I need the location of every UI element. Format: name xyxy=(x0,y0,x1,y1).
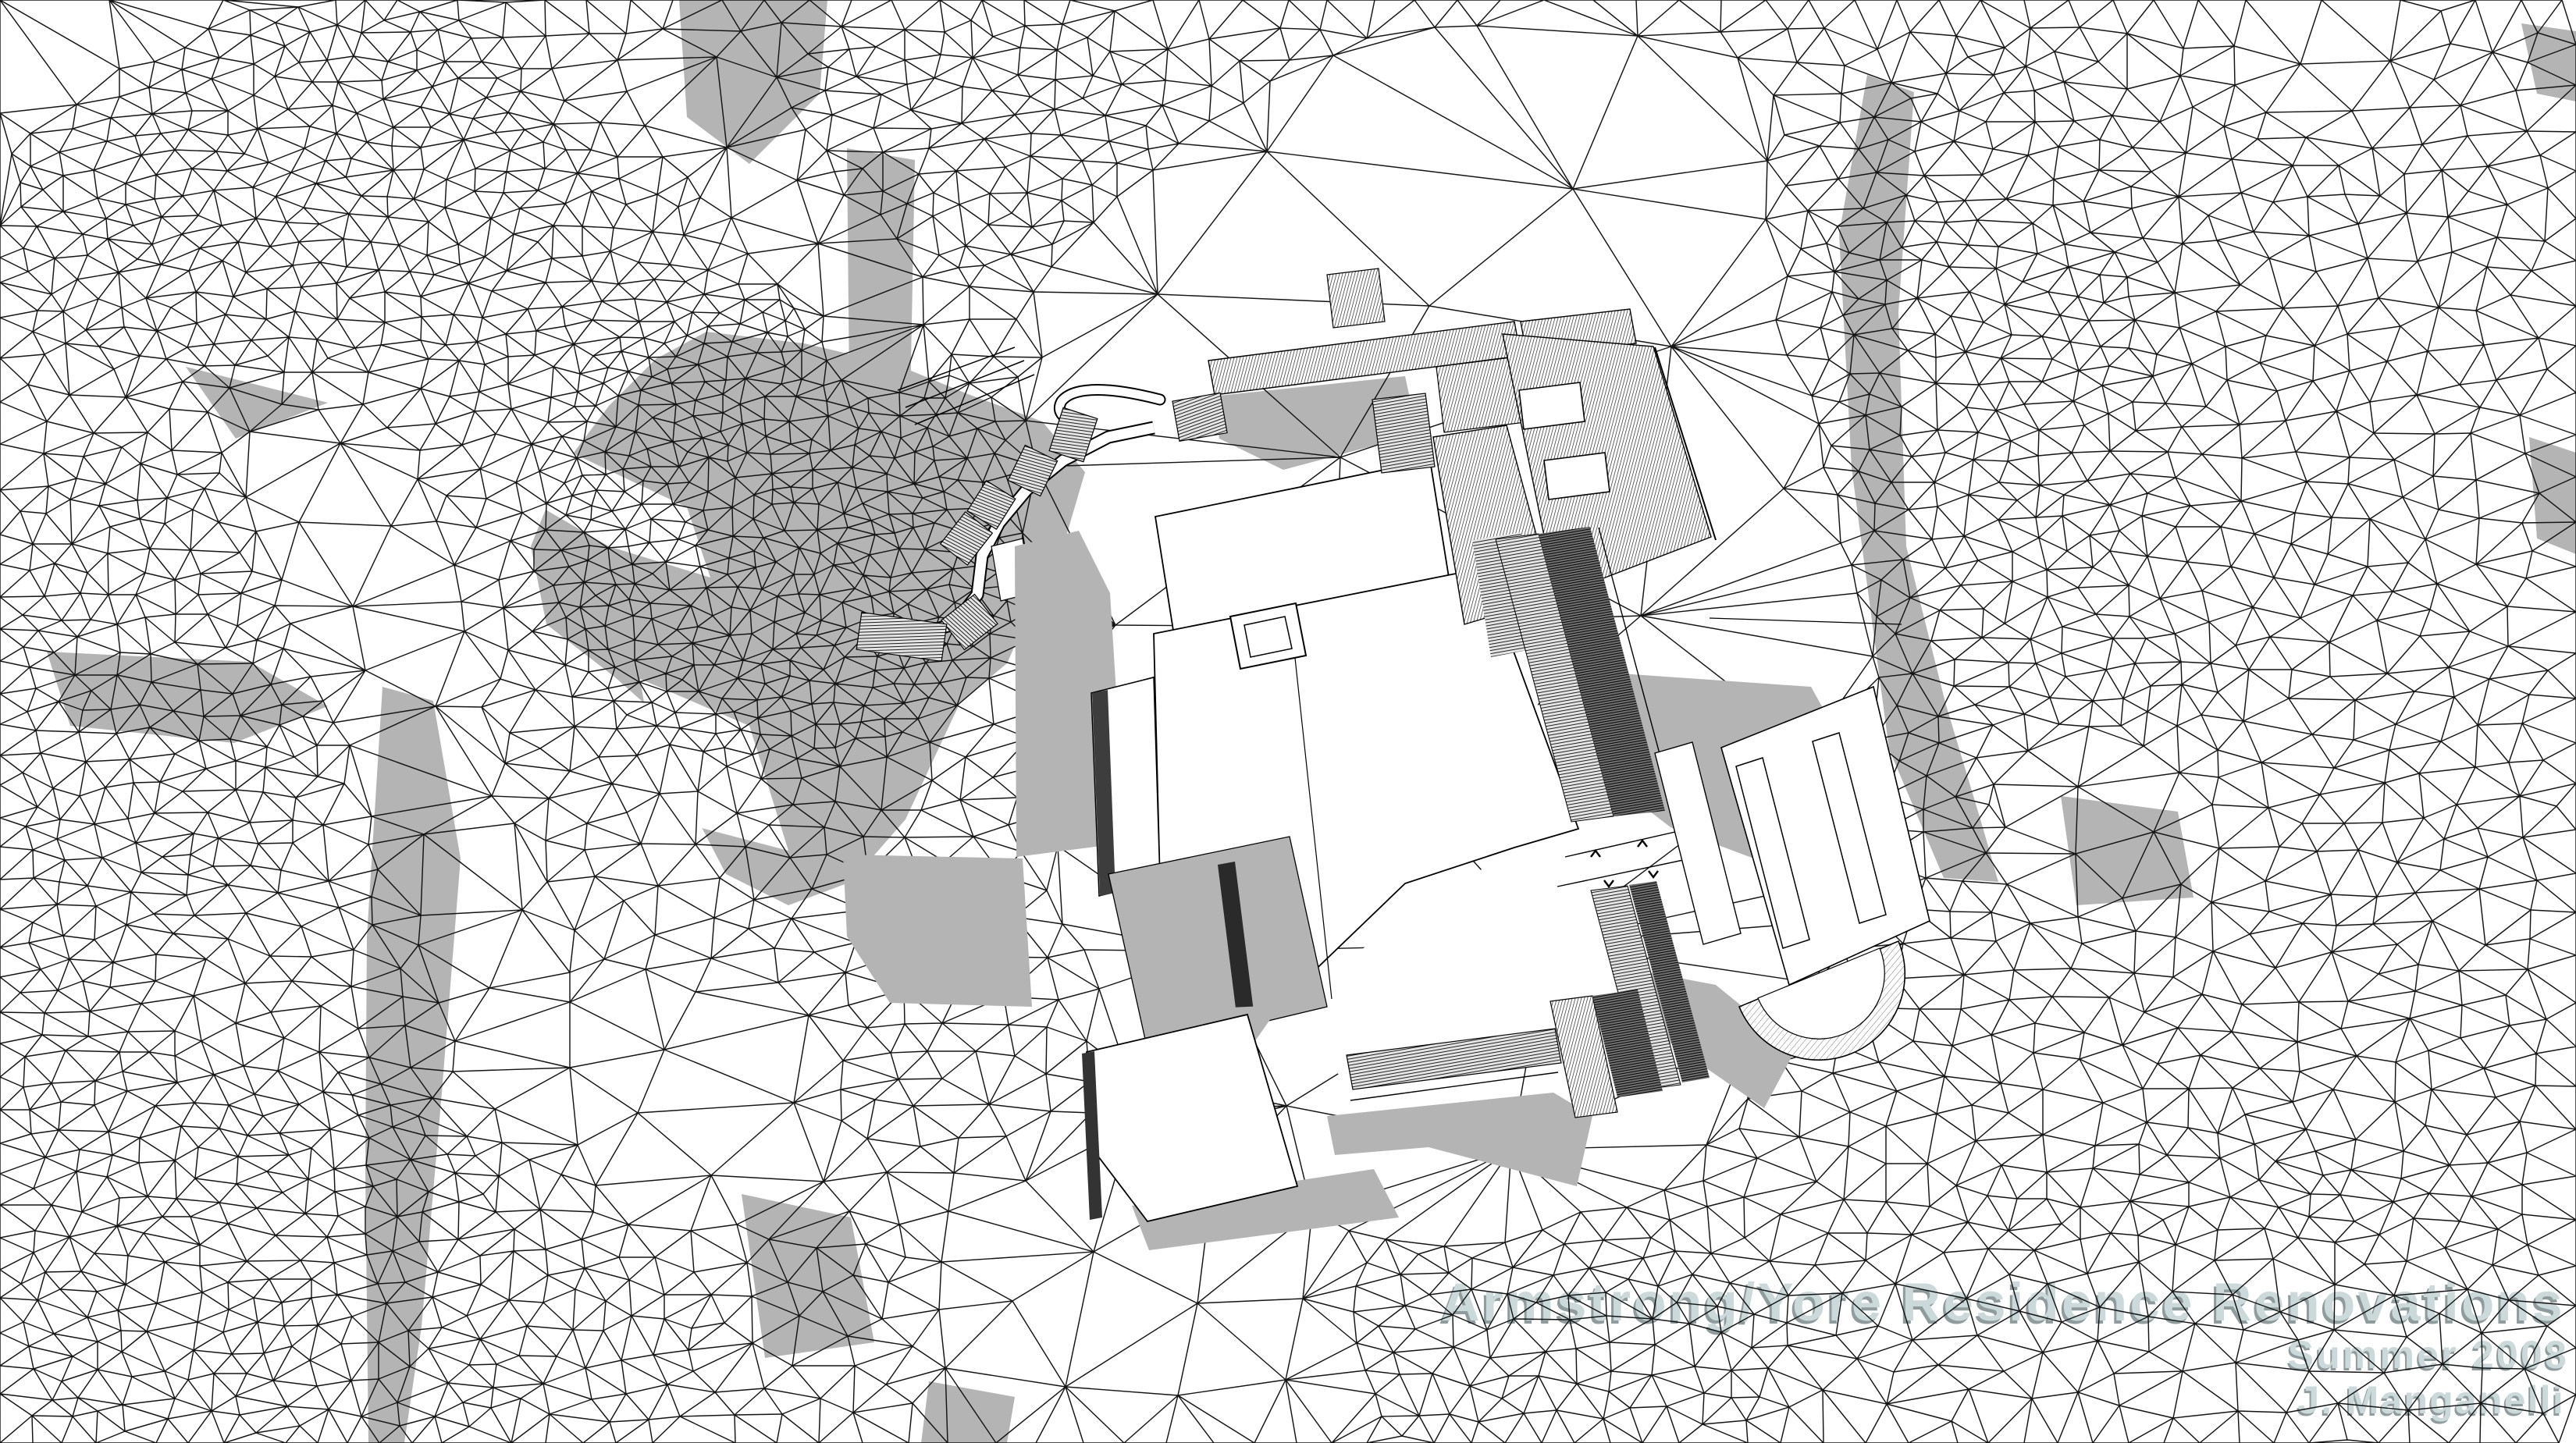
svg-text:J. Manganelli: J. Manganelli xyxy=(2297,1378,2565,1422)
